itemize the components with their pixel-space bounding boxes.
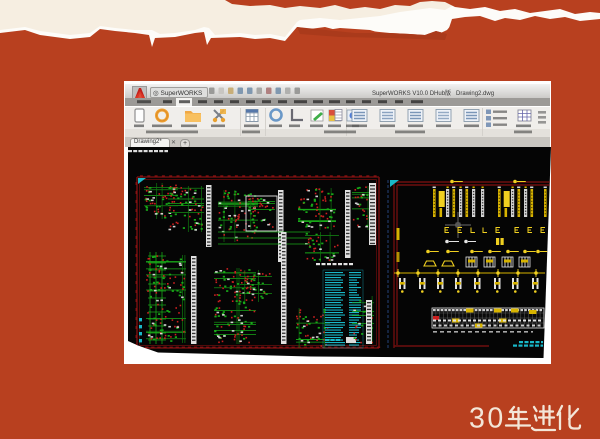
svg-text:30: 30 xyxy=(469,403,506,435)
